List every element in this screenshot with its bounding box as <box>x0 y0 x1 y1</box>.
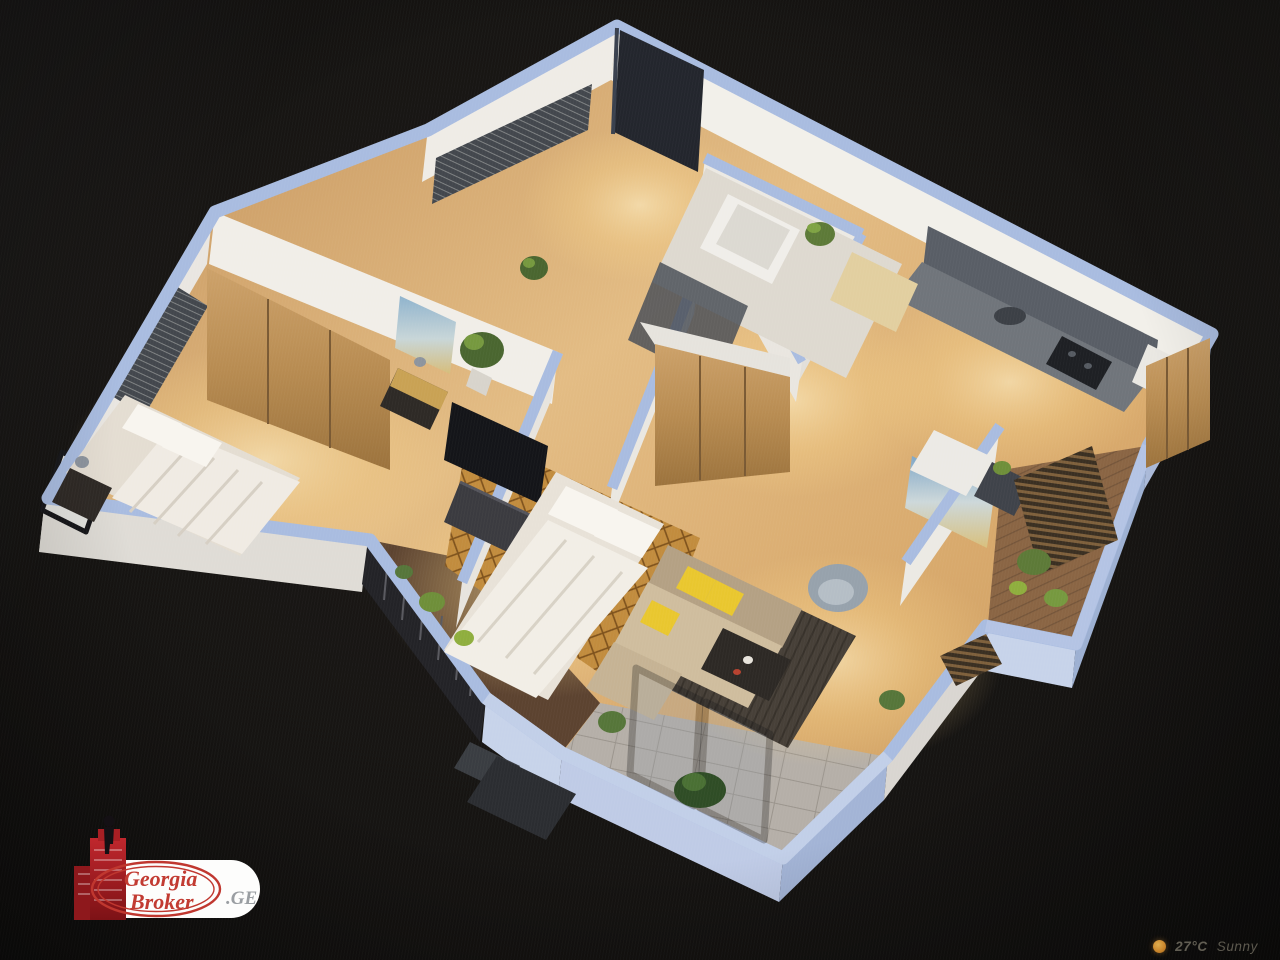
bathroom-plant-highlight <box>807 223 821 233</box>
logo-text-line2: Broker <box>129 889 194 914</box>
hall-plant-small-highlight <box>523 258 535 268</box>
armchair-seat <box>818 579 854 605</box>
sun-icon <box>1153 940 1166 953</box>
stove-burner-2 <box>1084 363 1092 369</box>
railing-plant-1 <box>419 592 445 612</box>
balcony-plant-1 <box>1017 549 1051 575</box>
balcony-plant-2 <box>1044 589 1068 607</box>
logo-svg: Georgia Broker .GE <box>34 814 284 946</box>
nightstand-right-lamp <box>414 357 426 367</box>
kitchen-sink <box>994 307 1026 325</box>
coffee-table-decor-1 <box>743 656 753 664</box>
logo-text-line1: Georgia <box>124 866 197 891</box>
living-edge-plant <box>879 690 905 710</box>
balcony-plant-3 <box>1009 581 1027 595</box>
hall-plant-large-highlight <box>464 334 484 350</box>
terrace-palm-highlight <box>682 773 706 791</box>
nightstand-left-lamp <box>75 456 89 468</box>
georgia-broker-logo: Georgia Broker .GE <box>34 814 284 946</box>
stove-burner-1 <box>1068 351 1076 357</box>
screen-photo-of-3d-floorplan: { "scene": { "description": "Photographe… <box>0 0 1280 960</box>
weather-temperature: 27°C <box>1175 939 1208 954</box>
railing-plant-2 <box>454 630 474 646</box>
hall-plant-small <box>520 256 548 280</box>
weather-condition: Sunny <box>1217 939 1258 954</box>
dining-plant <box>993 461 1011 475</box>
coffee-table-decor-2 <box>733 669 741 675</box>
weather-overlay: 27°C Sunny <box>1153 936 1258 956</box>
railing-plant-3 <box>395 565 413 579</box>
terrace-plant <box>598 711 626 733</box>
logo-suffix: .GE <box>226 888 257 909</box>
